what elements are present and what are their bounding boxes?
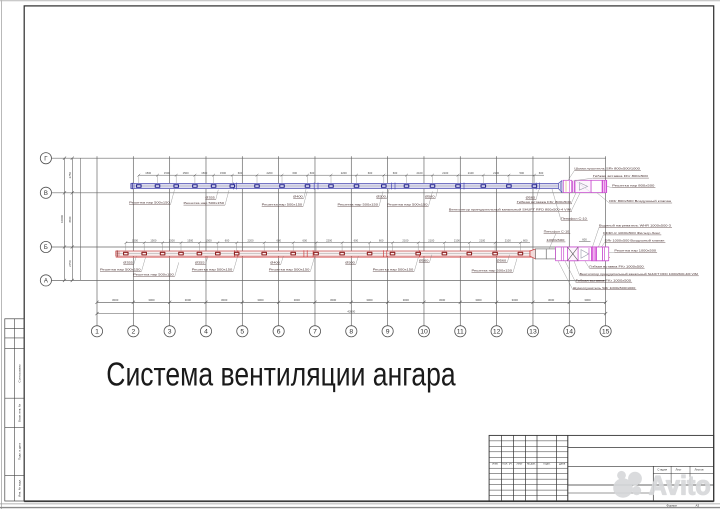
svg-text:600: 600 [523,239,528,243]
svg-text:А: А [44,279,48,285]
svg-text:Решетка нар 500х150: Решетка нар 500х150 [338,202,379,206]
svg-text:3000: 3000 [512,298,519,302]
svg-text:Подп. и дата: Подп. и дата [18,443,22,460]
svg-text:2750: 2750 [68,260,72,267]
svg-text:Ø560: Ø560 [425,194,435,198]
svg-text:№ док.: № док. [527,462,536,466]
svg-text:600: 600 [393,171,398,175]
svg-text:Решетка нар 500х150: Решетка нар 500х150 [387,202,428,206]
svg-text:Инв. № подл.: Инв. № подл. [18,479,22,497]
svg-text:Решетка нар 1000х500: Решетка нар 1000х500 [614,249,656,253]
svg-text:2200: 2200 [326,239,332,243]
svg-text:Гибкая вставка FKr 800х500: Гибкая вставка FKr 800х500 [593,174,648,178]
svg-text:Пенофол С-10: Пенофол С-10 [544,230,570,234]
svg-text:Гибкая вставка FKr 1000х500: Гибкая вставка FKr 1000х500 [576,278,632,282]
svg-text:Ø560: Ø560 [497,259,507,263]
svg-text:Формат: Формат [667,504,678,508]
svg-text:1500: 1500 [183,171,189,175]
svg-text:3000: 3000 [112,298,119,302]
svg-text:Решетка нар 800х500: Решетка нар 800х500 [612,184,655,188]
svg-text:Решетка нар 500х150: Решетка нар 500х150 [472,269,513,273]
svg-text:2: 2 [131,329,135,336]
svg-text:Лист: Лист [516,462,523,466]
svg-text:Решетка нар 500х150: Решетка нар 500х150 [184,201,225,205]
svg-text:Вентилятор принудительный кана: Вентилятор принудительный канальный SHUF… [449,208,572,212]
svg-text:Вентилятор принудительный кана: Вентилятор принудительный канальный SHUF… [580,272,699,276]
svg-text:Взам. инв. №: Взам. инв. № [18,404,22,422]
svg-text:600: 600 [276,239,281,243]
svg-text:11: 11 [457,329,464,336]
svg-text:Гибкая вставка FKr 800х500: Гибкая вставка FKr 800х500 [517,200,572,204]
svg-text:600: 600 [379,239,384,243]
svg-text:DRr 1000х500 Воздушный клапан: DRr 1000х500 Воздушный клапан [605,239,665,243]
svg-text:3000: 3000 [185,298,192,302]
svg-text:600: 600 [582,237,587,241]
svg-text:1500: 1500 [145,171,151,175]
svg-text:Ø500: Ø500 [345,260,355,264]
svg-text:1500: 1500 [169,239,175,243]
svg-text:1: 1 [95,329,99,336]
svg-text:Ø400: Ø400 [270,260,280,264]
svg-text:Ø355: Ø355 [205,196,215,200]
svg-text:13: 13 [529,329,537,336]
svg-text:Шумоглушитель SRr 1000х500/100: Шумоглушитель SRr 1000х500/1000 [573,286,636,290]
svg-text:Б: Б [44,245,48,251]
svg-text:14: 14 [566,329,574,336]
svg-text:3000: 3000 [584,298,591,302]
svg-text:1500: 1500 [150,239,156,243]
svg-text:2100: 2100 [454,239,460,243]
svg-text:3: 3 [168,329,172,336]
svg-text:3000: 3000 [475,298,482,302]
svg-text:Согласовано: Согласовано [18,364,22,382]
svg-text:3000: 3000 [294,298,301,302]
svg-text:12: 12 [493,329,501,336]
svg-text:DRr 800х500 Воздушный клапан: DRr 800х500 Воздушный клапан [609,199,671,203]
svg-text:600: 600 [354,239,359,243]
svg-text:2200: 2200 [267,171,273,175]
svg-text:1500: 1500 [132,239,138,243]
svg-text:1500: 1500 [220,171,226,175]
svg-text:2100: 2100 [479,239,485,243]
svg-text:Решетка нар 500х150: Решетка нар 500х150 [269,267,310,271]
svg-text:Подп.: Подп. [543,462,551,466]
svg-text:Водяной нагреватель WHR 1000х5: Водяной нагреватель WHR 1000х500-3 [599,224,671,228]
svg-text:Шумоглушитель SRr 800х500/1000: Шумоглушитель SRr 800х500/1000 [574,167,640,171]
svg-text:600: 600 [310,171,315,175]
svg-text:Гибкая вставка FKr 1000х500: Гибкая вставка FKr 1000х500 [589,264,644,268]
svg-text:600: 600 [539,171,544,175]
svg-text:9: 9 [386,329,390,336]
svg-text:600: 600 [368,171,373,175]
svg-text:8: 8 [349,329,353,336]
svg-text:1500: 1500 [164,171,170,175]
svg-text:1500: 1500 [187,239,193,243]
svg-text:2750: 2750 [68,172,72,179]
svg-text:Кол. уч.: Кол. уч. [503,462,513,466]
svg-text:3000: 3000 [148,298,155,302]
svg-text:Решетка нар 500х150: Решетка нар 500х150 [100,267,141,271]
svg-text:3000: 3000 [221,298,228,302]
svg-text:Решетка нар 500х150: Решетка нар 500х150 [262,202,303,206]
svg-text:Изм.: Изм. [492,462,498,466]
svg-text:7: 7 [313,329,317,336]
svg-text:3000: 3000 [548,298,555,302]
svg-text:Дата: Дата [559,462,566,466]
svg-text:Avito: Avito [649,470,711,500]
svg-text:Система вентиляции ангара: Система вентиляции ангара [106,355,456,392]
svg-text:3000: 3000 [330,298,337,302]
svg-text:2100: 2100 [493,171,499,175]
svg-text:Решетка нар 500х150: Решетка нар 500х150 [133,272,174,276]
svg-text:Ø560: Ø560 [419,259,429,263]
svg-text:Ø500: Ø500 [376,194,386,198]
svg-text:2100: 2100 [468,171,474,175]
svg-text:3000: 3000 [439,298,446,302]
svg-text:Ø355: Ø355 [195,260,205,264]
svg-text:2100: 2100 [505,239,511,243]
svg-text:4500: 4500 [68,216,72,223]
svg-text:2100: 2100 [402,239,408,243]
svg-text:Решетка нар 500х150: Решетка нар 500х150 [192,267,233,271]
svg-text:10000: 10000 [60,215,64,223]
svg-text:4: 4 [204,329,208,336]
svg-text:2100: 2100 [428,239,434,243]
svg-text:3000: 3000 [366,298,373,302]
svg-text:600: 600 [293,171,298,175]
svg-text:1000х500: 1000х500 [546,238,564,242]
svg-text:1500: 1500 [201,171,207,175]
svg-text:В: В [44,191,48,197]
svg-text:6: 6 [277,329,281,336]
svg-text:Ø400: Ø400 [293,194,303,198]
svg-text:А3: А3 [696,504,700,508]
svg-text:Пенофол С-10: Пенофол С-10 [561,216,587,220]
svg-text:500: 500 [519,171,524,175]
svg-text:42000: 42000 [347,309,355,313]
svg-text:1500: 1500 [206,239,212,243]
svg-text:2100: 2100 [417,171,423,175]
svg-text:3000: 3000 [403,298,410,302]
svg-text:Ø355: Ø355 [123,260,133,264]
svg-text:2200: 2200 [341,171,347,175]
svg-text:3000: 3000 [257,298,264,302]
svg-text:10: 10 [420,329,428,336]
svg-text:2100: 2100 [442,171,448,175]
svg-text:600: 600 [225,239,230,243]
svg-text:5: 5 [240,329,244,336]
svg-text:2200: 2200 [248,239,254,243]
svg-text:600: 600 [302,239,307,243]
svg-text:FDRr-К 1000х500 Фильтр-бокс: FDRr-К 1000х500 Фильтр-бокс [603,231,661,235]
svg-text:Решетка нар 500х150: Решетка нар 500х150 [373,267,414,271]
svg-text:15: 15 [602,329,610,336]
svg-text:600: 600 [238,171,243,175]
svg-text:Решетка нар 500х150: Решетка нар 500х150 [129,200,170,204]
